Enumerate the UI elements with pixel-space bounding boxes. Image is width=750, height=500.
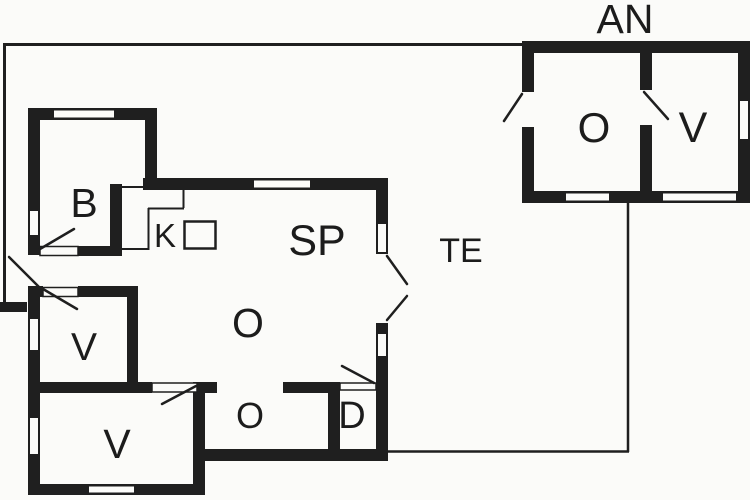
window-v2-bottom (88, 486, 135, 494)
wall-b-right (145, 108, 157, 190)
wall-v1-v2-divider (28, 382, 152, 393)
window-sp-right (377, 223, 387, 253)
walls-annex (522, 41, 750, 203)
door-openings (40, 247, 376, 393)
wall-annex-left-upper (522, 41, 534, 92)
wall-hall-bottom (193, 449, 388, 461)
window-b-top (53, 110, 115, 119)
room-label-living-o: O (232, 300, 264, 346)
window-b-left (29, 210, 39, 236)
door-threshold-d (340, 383, 376, 390)
stove-icon (185, 222, 216, 249)
room-label-v1: V (71, 326, 97, 369)
room-label-k: K (154, 217, 176, 254)
door-threshold-v2 (152, 383, 197, 392)
wall-closet (110, 184, 122, 250)
wall-v2-right (193, 382, 205, 495)
door-swing-entrance (9, 257, 40, 288)
window-sp-top (253, 180, 311, 189)
window-v2-left (29, 417, 39, 455)
door-swing-terrace-upper (387, 256, 407, 284)
wall-annex-divider-lower (640, 125, 652, 191)
room-label-sp: SP (288, 217, 345, 265)
wall-annex-top (522, 41, 750, 53)
walls-main-house (0, 108, 388, 495)
terrace-label: TE (439, 232, 482, 270)
room-label-annex-v: V (679, 104, 708, 152)
room-label-v2: V (103, 421, 131, 467)
window-annex-right (739, 100, 749, 140)
room-label-b: B (70, 180, 97, 226)
floor-plan: AN O V B K SP TE O V V O D (0, 0, 750, 500)
annex-title-label: AN (597, 0, 654, 42)
room-labels: AN O V B K SP TE O V V O D (70, 0, 707, 467)
room-label-annex-o: O (578, 104, 611, 151)
door-swing-annex-inner (644, 92, 668, 119)
wall-annex-divider-upper (640, 53, 652, 90)
door-threshold-b (40, 247, 78, 256)
window-v1-left (29, 318, 39, 351)
door-swing-terrace-lower (387, 296, 407, 320)
terrace-door-opening (375, 253, 389, 323)
window-annex-v-bottom (662, 193, 737, 202)
wall-v1-right (127, 286, 138, 393)
wall-entry-fence (0, 302, 27, 312)
window-annex-o-bottom (565, 193, 610, 202)
room-label-d: D (338, 395, 365, 437)
door-swing-annex-entry (504, 94, 522, 121)
room-label-hall-o: O (236, 395, 264, 436)
floor-plan-page: AN O V B K SP TE O V V O D (0, 0, 750, 500)
window-right-lower (377, 333, 387, 357)
door-swing-d (342, 366, 374, 383)
